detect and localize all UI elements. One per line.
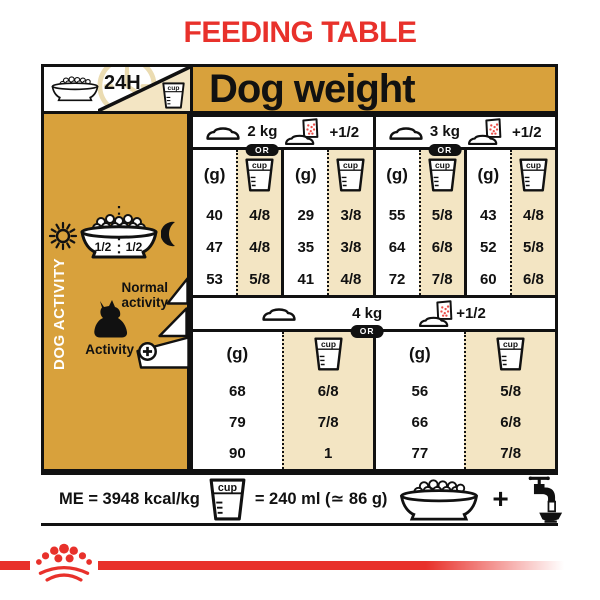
moon-icon	[161, 221, 181, 247]
weight-header-row: 2 kg OR +1/2 3 kg OR +1/2	[193, 117, 555, 150]
measuring-cup-icon	[162, 82, 185, 109]
plus-circle-icon	[137, 341, 158, 362]
cup-value: 7/8	[421, 263, 464, 295]
plus-sign: +	[492, 485, 508, 513]
dog-activity-sidebar: DOG ACTIVITY 1/2 1/2 Normal activity	[41, 114, 190, 472]
grams-value: 68	[193, 376, 282, 407]
empty-bowl-icon	[206, 125, 240, 140]
measuring-cup-icon	[519, 158, 548, 192]
weight-header-row-4kg: 4 kg OR +1/2	[193, 295, 555, 332]
cup-value: 3/8	[329, 199, 372, 231]
or-badge: OR	[246, 144, 279, 157]
grams-header: (g)	[376, 150, 419, 199]
dog-weight-header: Dog weight	[190, 64, 558, 114]
grams-value: 52	[467, 231, 510, 263]
grams-value: 53	[193, 263, 236, 295]
cup-value: 5/8	[238, 263, 281, 295]
table-body-2kg-3kg: (g) 40 47 53 4/8 4/8 5/8 (g) 29 35 41	[193, 150, 555, 295]
half-left-label: 1/2	[95, 240, 112, 254]
grams-header: (g)	[467, 150, 510, 199]
grams-value: 40	[193, 199, 236, 231]
grams-value: 90	[193, 438, 282, 469]
grams-value: 56	[376, 376, 465, 407]
feeding-table-page: cup FEEDING TABLE 24H Dog weight DOG ACT…	[0, 0, 600, 600]
pouch-and-bowl-icon	[467, 118, 509, 146]
activity-wedge-medium-icon	[158, 307, 188, 338]
me-kcal-label: ME = 3948 kcal/kg	[59, 490, 200, 509]
or-badge: OR	[429, 144, 462, 157]
measuring-cup-icon	[428, 158, 457, 192]
empty-bowl-icon	[262, 306, 296, 321]
weight-label: 4 kg	[352, 305, 382, 322]
grams-header: (g)	[376, 332, 465, 376]
cup-value: 6/8	[466, 407, 555, 438]
column-4kg-dry: (g) 68 79 90 6/8 7/8 1	[193, 332, 376, 469]
grams-header: (g)	[193, 150, 236, 199]
table-body-4kg: (g) 68 79 90 6/8 7/8 1 (g) 56 66 77	[193, 332, 555, 469]
dog-weight-label: Dog weight	[209, 67, 415, 112]
water-tap-icon	[519, 474, 563, 524]
grams-value: 29	[284, 199, 327, 231]
grams-value: 35	[284, 231, 327, 263]
empty-bowl-icon	[389, 125, 423, 140]
grams-value: 64	[376, 231, 419, 263]
weight-label: 2 kg	[247, 123, 277, 140]
cup-value: 1	[284, 438, 373, 469]
pouch-and-bowl-icon	[284, 118, 326, 146]
grams-value: 55	[376, 199, 419, 231]
cup-value: 5/8	[421, 199, 464, 231]
yorkshire-dog-icon	[90, 299, 134, 339]
feeding-amounts-table: 2 kg OR +1/2 3 kg OR +1/2 (g) 40 47 53	[190, 114, 558, 472]
cup-value: 3/8	[329, 231, 372, 263]
dog-activity-label: DOG ACTIVITY	[51, 258, 68, 370]
or-badge: OR	[351, 325, 384, 338]
kibble-bowl-icon	[49, 75, 101, 102]
grams-value: 60	[467, 263, 510, 295]
sun-icon	[48, 221, 78, 251]
measuring-cup-icon	[314, 337, 343, 371]
column-3kg-mixed: (g) 43 52 60 4/8 5/8 6/8	[467, 150, 555, 295]
weight-cell-4kg: 4 kg OR +1/2	[193, 298, 555, 329]
activity-plus-label: Activity	[74, 342, 134, 357]
split-meal-bowl-icon: 1/2 1/2	[77, 206, 161, 268]
weight-label: 3 kg	[430, 123, 460, 140]
column-2kg-dry: (g) 40 47 53 4/8 4/8 5/8	[193, 150, 284, 295]
cup-value: 6/8	[512, 263, 555, 295]
measuring-cup-icon	[496, 337, 525, 371]
cup-value: 7/8	[466, 438, 555, 469]
grams-value: 43	[467, 199, 510, 231]
half-right-label: 1/2	[126, 240, 143, 254]
cup-volume-label: = 240 ml (≃ 86 g)	[255, 489, 388, 509]
column-3kg-dry: (g) 55 64 72 5/8 6/8 7/8	[376, 150, 467, 295]
grams-value: 72	[376, 263, 419, 295]
grams-value: 79	[193, 407, 282, 438]
measuring-cup-icon	[336, 158, 365, 192]
kibble-bowl-icon	[396, 477, 482, 522]
plus-half-label: +1/2	[329, 124, 359, 141]
cup-value: 7/8	[284, 407, 373, 438]
cup-value: 4/8	[512, 199, 555, 231]
grams-value: 77	[376, 438, 465, 469]
weight-cell-3kg: 3 kg OR +1/2	[376, 117, 556, 147]
grams-value: 66	[376, 407, 465, 438]
weight-cell-2kg: 2 kg OR +1/2	[193, 117, 376, 147]
pouch-and-bowl-icon	[418, 300, 460, 328]
column-4kg-mixed: (g) 56 66 77 5/8 6/8 7/8	[376, 332, 556, 469]
activity-wedge-small-icon	[166, 277, 189, 305]
cup-value: 5/8	[512, 231, 555, 263]
grams-value: 47	[193, 231, 236, 263]
energy-info-row: ME = 3948 kcal/kg = 240 ml (≃ 86 g) +	[41, 472, 558, 526]
cup-value: 6/8	[284, 376, 373, 407]
column-2kg-mixed: (g) 29 35 41 3/8 3/8 4/8	[284, 150, 375, 295]
grams-value: 41	[284, 263, 327, 295]
crown-logo-icon	[35, 542, 93, 583]
cup-value: 6/8	[421, 231, 464, 263]
cup-value: 4/8	[238, 231, 281, 263]
measuring-cup-icon	[209, 478, 246, 521]
cup-value: 4/8	[329, 263, 372, 295]
daily-ration-header: 24H	[41, 64, 190, 114]
plus-half-label: +1/2	[456, 305, 486, 322]
cup-value: 4/8	[238, 199, 281, 231]
grams-header: (g)	[284, 150, 327, 199]
measuring-cup-icon	[245, 158, 274, 192]
grams-header: (g)	[193, 332, 282, 376]
page-title: FEEDING TABLE	[0, 16, 600, 50]
plus-half-label: +1/2	[512, 124, 542, 141]
cup-value: 5/8	[466, 376, 555, 407]
